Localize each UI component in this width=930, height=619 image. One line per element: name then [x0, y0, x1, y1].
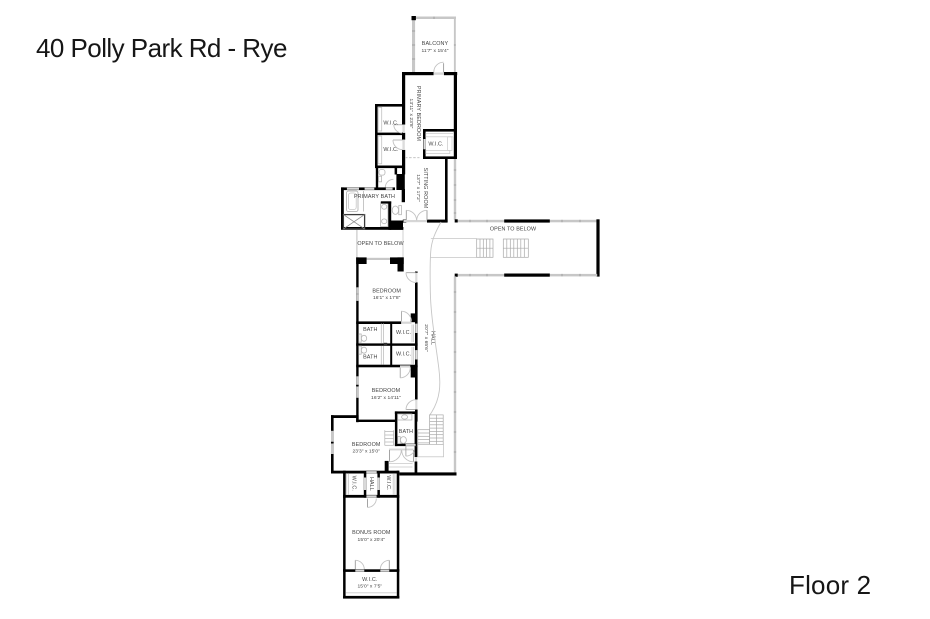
svg-text:W.I.C.: W.I.C. — [396, 352, 411, 358]
svg-text:W.I.C.: W.I.C. — [350, 476, 356, 491]
svg-text:16'2" x 14'11": 16'2" x 14'11" — [371, 395, 401, 401]
svg-text:PRIMARY BEDROOM: PRIMARY BEDROOM — [415, 86, 421, 142]
svg-text:BEDROOM: BEDROOM — [372, 288, 401, 294]
svg-text:BEDROOM: BEDROOM — [372, 388, 401, 394]
svg-text:PRIMARY BATH: PRIMARY BATH — [354, 194, 395, 200]
svg-text:W.I.C.: W.I.C. — [396, 330, 411, 336]
svg-text:BALCONY: BALCONY — [422, 41, 449, 47]
svg-text:BEDROOM: BEDROOM — [352, 442, 381, 448]
svg-text:OPEN TO BELOW: OPEN TO BELOW — [357, 241, 404, 247]
svg-text:SITTING ROOM: SITTING ROOM — [422, 168, 428, 209]
svg-text:HALL: HALL — [368, 477, 374, 491]
svg-text:BONUS ROOM: BONUS ROOM — [352, 530, 391, 536]
svg-text:16'1" x 17'8": 16'1" x 17'8" — [373, 295, 401, 301]
svg-text:W.I.C.: W.I.C. — [428, 142, 443, 148]
svg-text:W.I.C.: W.I.C. — [362, 577, 377, 583]
svg-text:BATH: BATH — [363, 327, 377, 333]
svg-text:13'11" x 23'8": 13'11" x 23'8" — [408, 99, 414, 129]
svg-text:15'0" x 7'5": 15'0" x 7'5" — [357, 584, 382, 590]
svg-text:23'3" x 15'0": 23'3" x 15'0" — [352, 448, 380, 454]
svg-text:OPEN TO BELOW: OPEN TO BELOW — [490, 226, 537, 232]
svg-text:W.I.C.: W.I.C. — [385, 475, 391, 490]
svg-text:20'7" x 65'6": 20'7" x 65'6" — [423, 324, 429, 352]
svg-text:11'7" x 15'4": 11'7" x 15'4" — [421, 48, 448, 54]
svg-text:40 Polly Park Rd - Rye: 40 Polly Park Rd - Rye — [36, 33, 287, 63]
svg-text:W.I.C.: W.I.C. — [383, 121, 398, 127]
svg-text:15'0" x 20'4": 15'0" x 20'4" — [358, 537, 386, 543]
svg-text:13'7" x 17'2": 13'7" x 17'2" — [415, 174, 421, 202]
svg-text:BATH: BATH — [363, 355, 377, 361]
svg-text:BATH: BATH — [399, 429, 413, 435]
svg-text:Floor 2: Floor 2 — [789, 570, 871, 600]
